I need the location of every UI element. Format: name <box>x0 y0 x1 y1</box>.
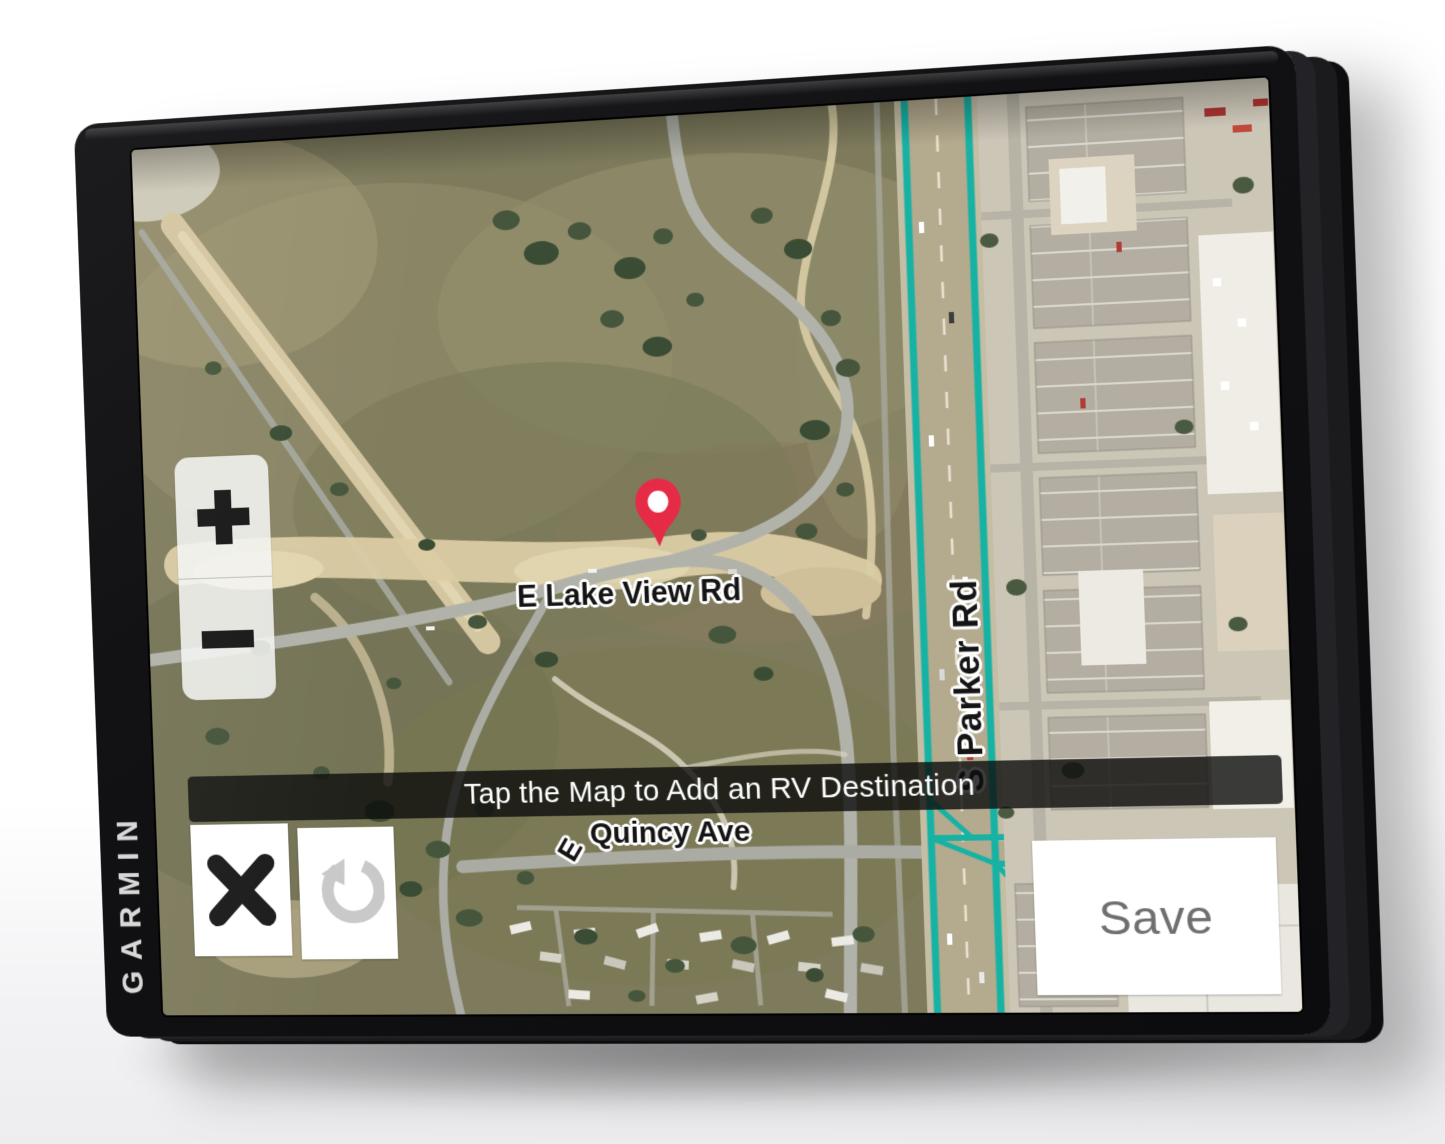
garmin-device: GARMIN <box>74 44 1331 1036</box>
zoom-in-button[interactable] <box>174 454 272 580</box>
garmin-logo: GARMIN <box>111 810 151 995</box>
undo-arrow-icon <box>309 852 386 935</box>
close-x-icon <box>201 845 282 935</box>
undo-button[interactable] <box>297 827 398 960</box>
zoom-out-button[interactable] <box>178 577 276 701</box>
save-button[interactable]: Save <box>1032 837 1281 995</box>
scene: GARMIN <box>0 0 1445 1144</box>
plus-icon <box>196 489 250 545</box>
zoom-control <box>174 454 277 700</box>
device-screen: E Lake View Rd S Parker Rd E Quincy Ave … <box>131 77 1302 1015</box>
product-photo-page: GARMIN <box>0 0 1445 1144</box>
close-button[interactable] <box>190 823 292 956</box>
minus-icon <box>201 629 254 648</box>
